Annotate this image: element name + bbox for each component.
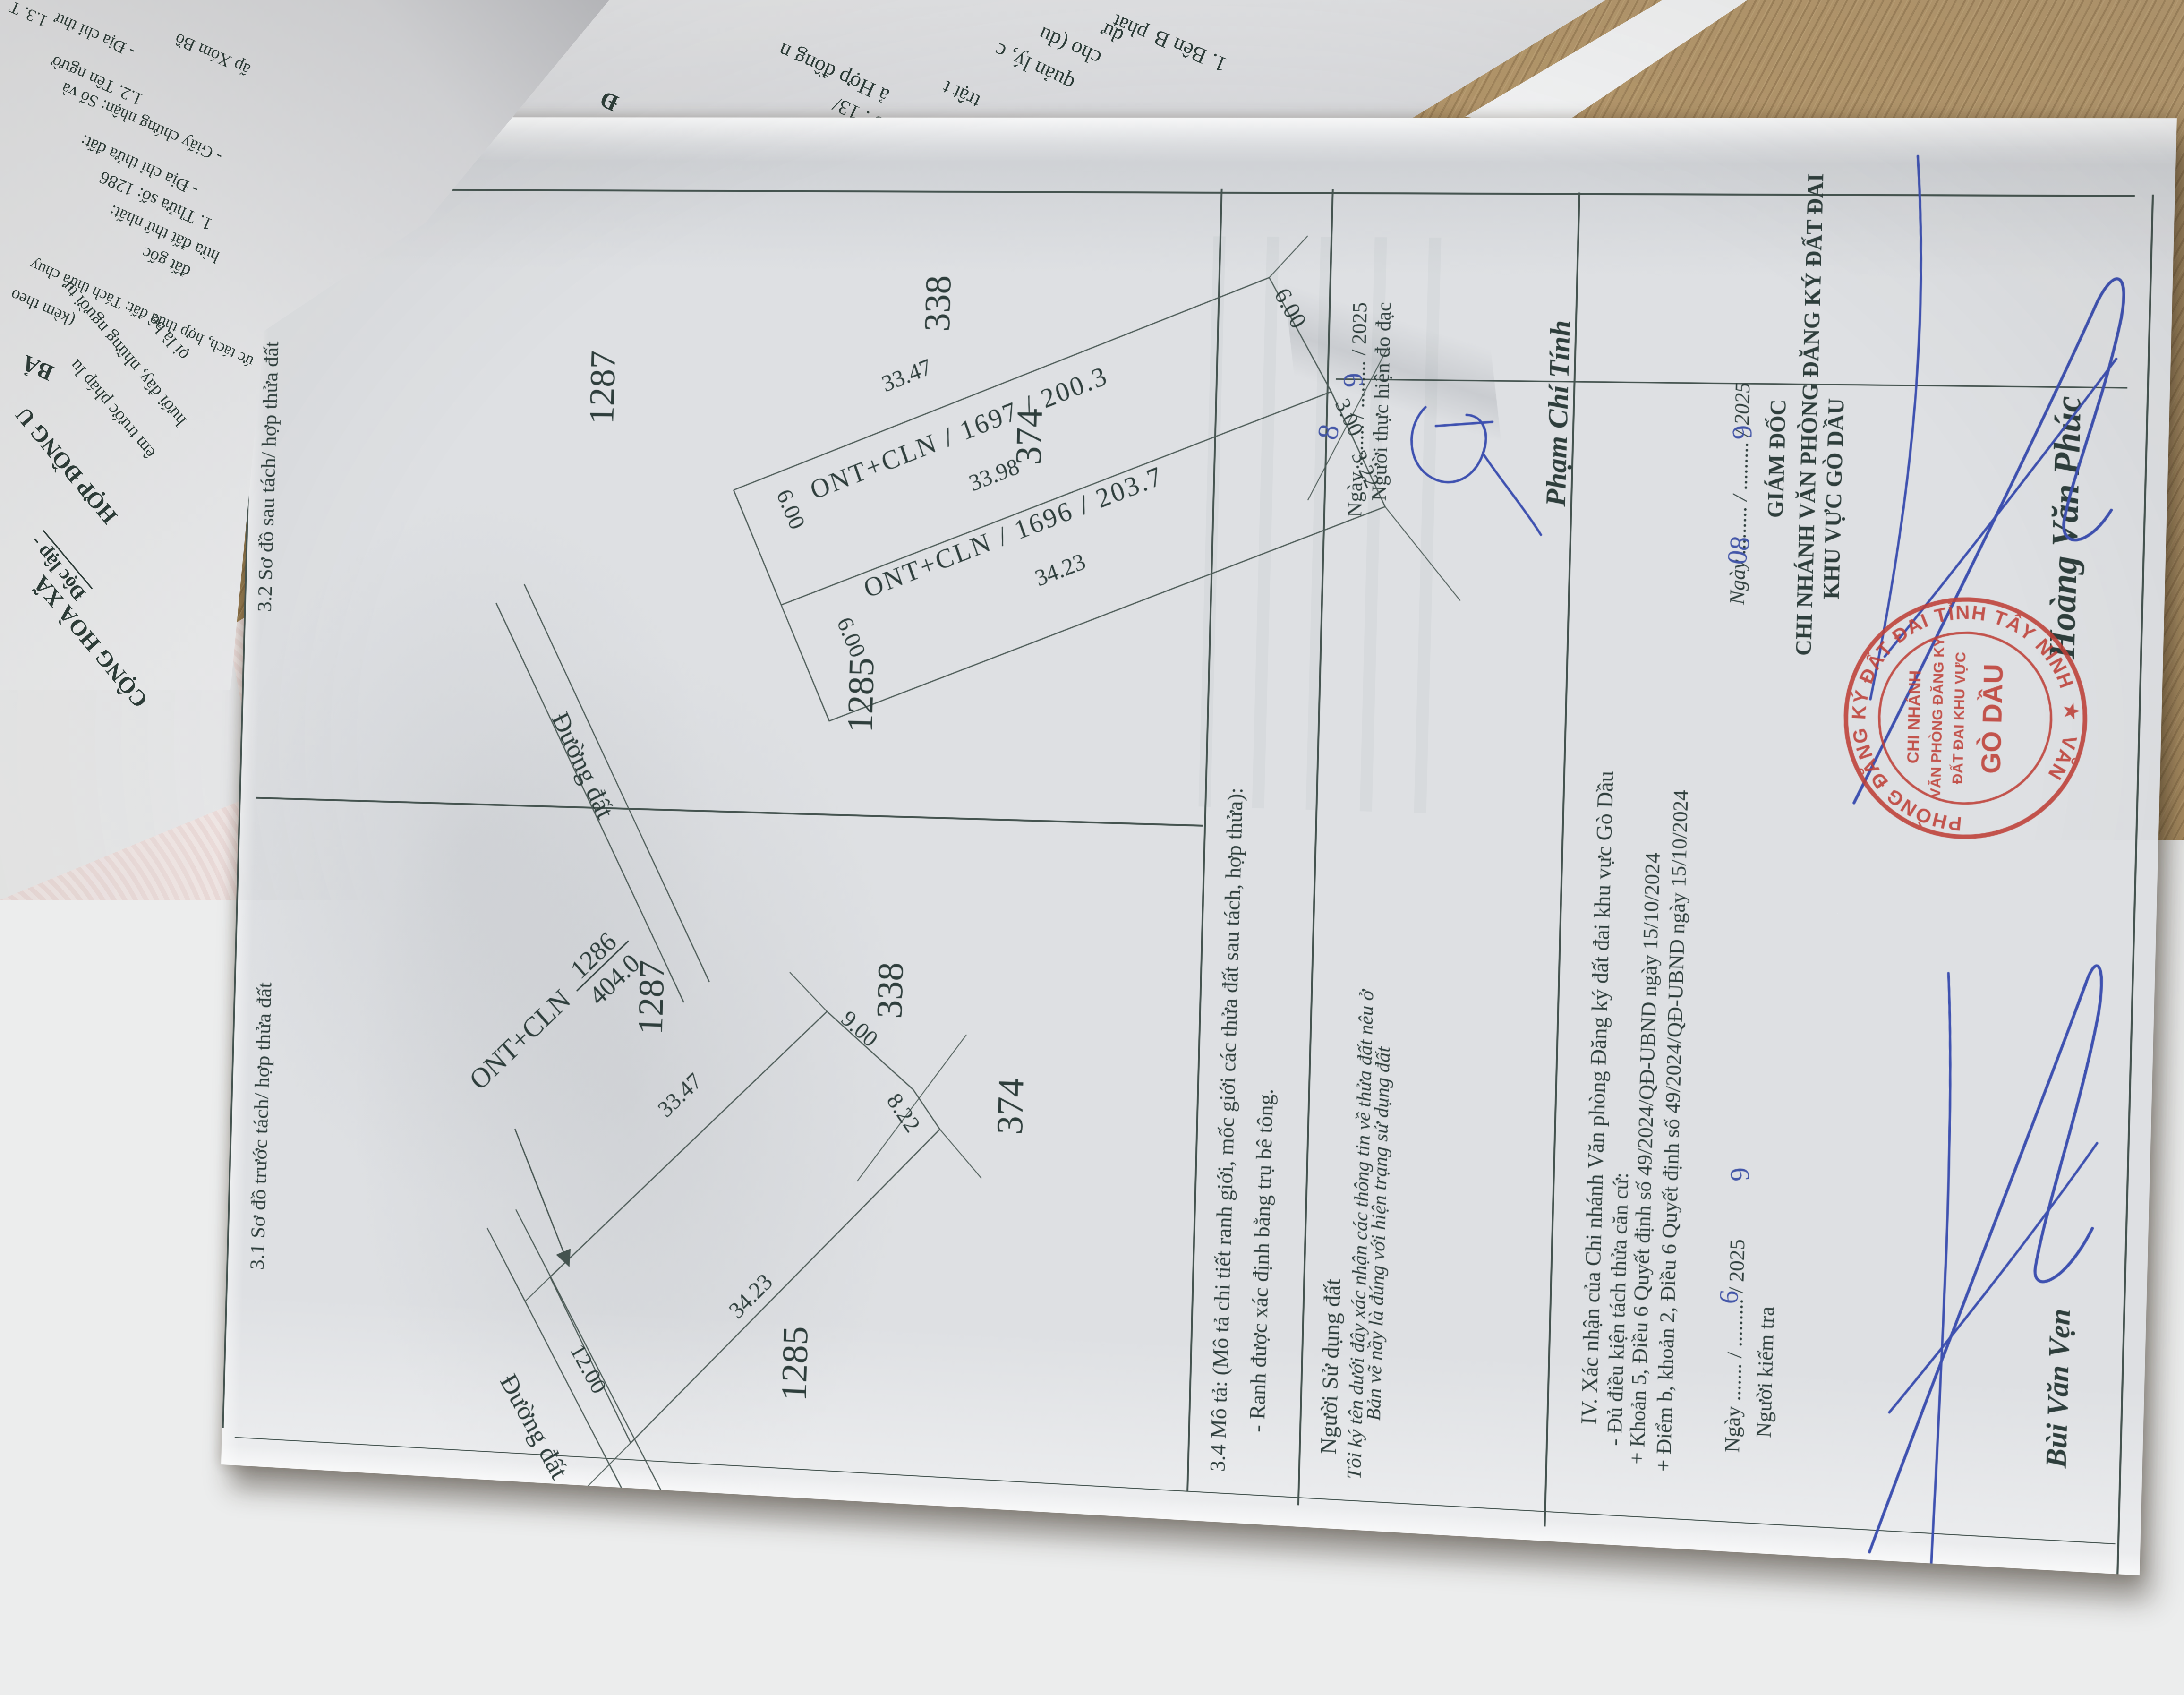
svg-text:33.47: 33.47 <box>653 1068 707 1122</box>
svg-text:6.00: 6.00 <box>832 613 870 661</box>
svg-text:1285: 1285 <box>840 657 882 733</box>
svg-text:VĂN PHÒNG ĐĂNG KÝ: VĂN PHÒNG ĐĂNG KÝ <box>1927 637 1947 798</box>
svg-text:338: 338 <box>870 961 911 1019</box>
svg-text:374: 374 <box>1008 408 1050 465</box>
svg-text:8.22: 8.22 <box>882 1088 925 1137</box>
svg-text:ONT+CLN / 1697 / 200.3: ONT+CLN / 1697 / 200.3 <box>806 360 1112 505</box>
svg-text:GÒ DẦU: GÒ DẦU <box>1975 664 2009 774</box>
svg-text:ONT+CLN: ONT+CLN <box>463 983 576 1096</box>
svg-text:1285: 1285 <box>774 1325 816 1402</box>
svg-text:33.47: 33.47 <box>879 354 935 397</box>
svg-text:374: 374 <box>990 1077 1032 1135</box>
svg-text:ĐẤT ĐAI KHU VỰC: ĐẤT ĐAI KHU VỰC <box>1949 652 1969 785</box>
svg-text:338: 338 <box>917 275 959 332</box>
svg-text:1287: 1287 <box>582 350 623 425</box>
svg-text:6.00: 6.00 <box>771 485 810 533</box>
svg-text:34.23: 34.23 <box>1032 548 1089 592</box>
svg-text:CHI NHÁNH: CHI NHÁNH <box>1903 670 1924 763</box>
svg-text:Đường đất: Đường đất <box>495 1369 573 1484</box>
svg-text:ONT+CLN / 1696 / 203.7: ONT+CLN / 1696 / 203.7 <box>860 460 1167 603</box>
svg-text:12.00: 12.00 <box>565 1340 611 1398</box>
svg-text:34.23: 34.23 <box>724 1268 777 1324</box>
